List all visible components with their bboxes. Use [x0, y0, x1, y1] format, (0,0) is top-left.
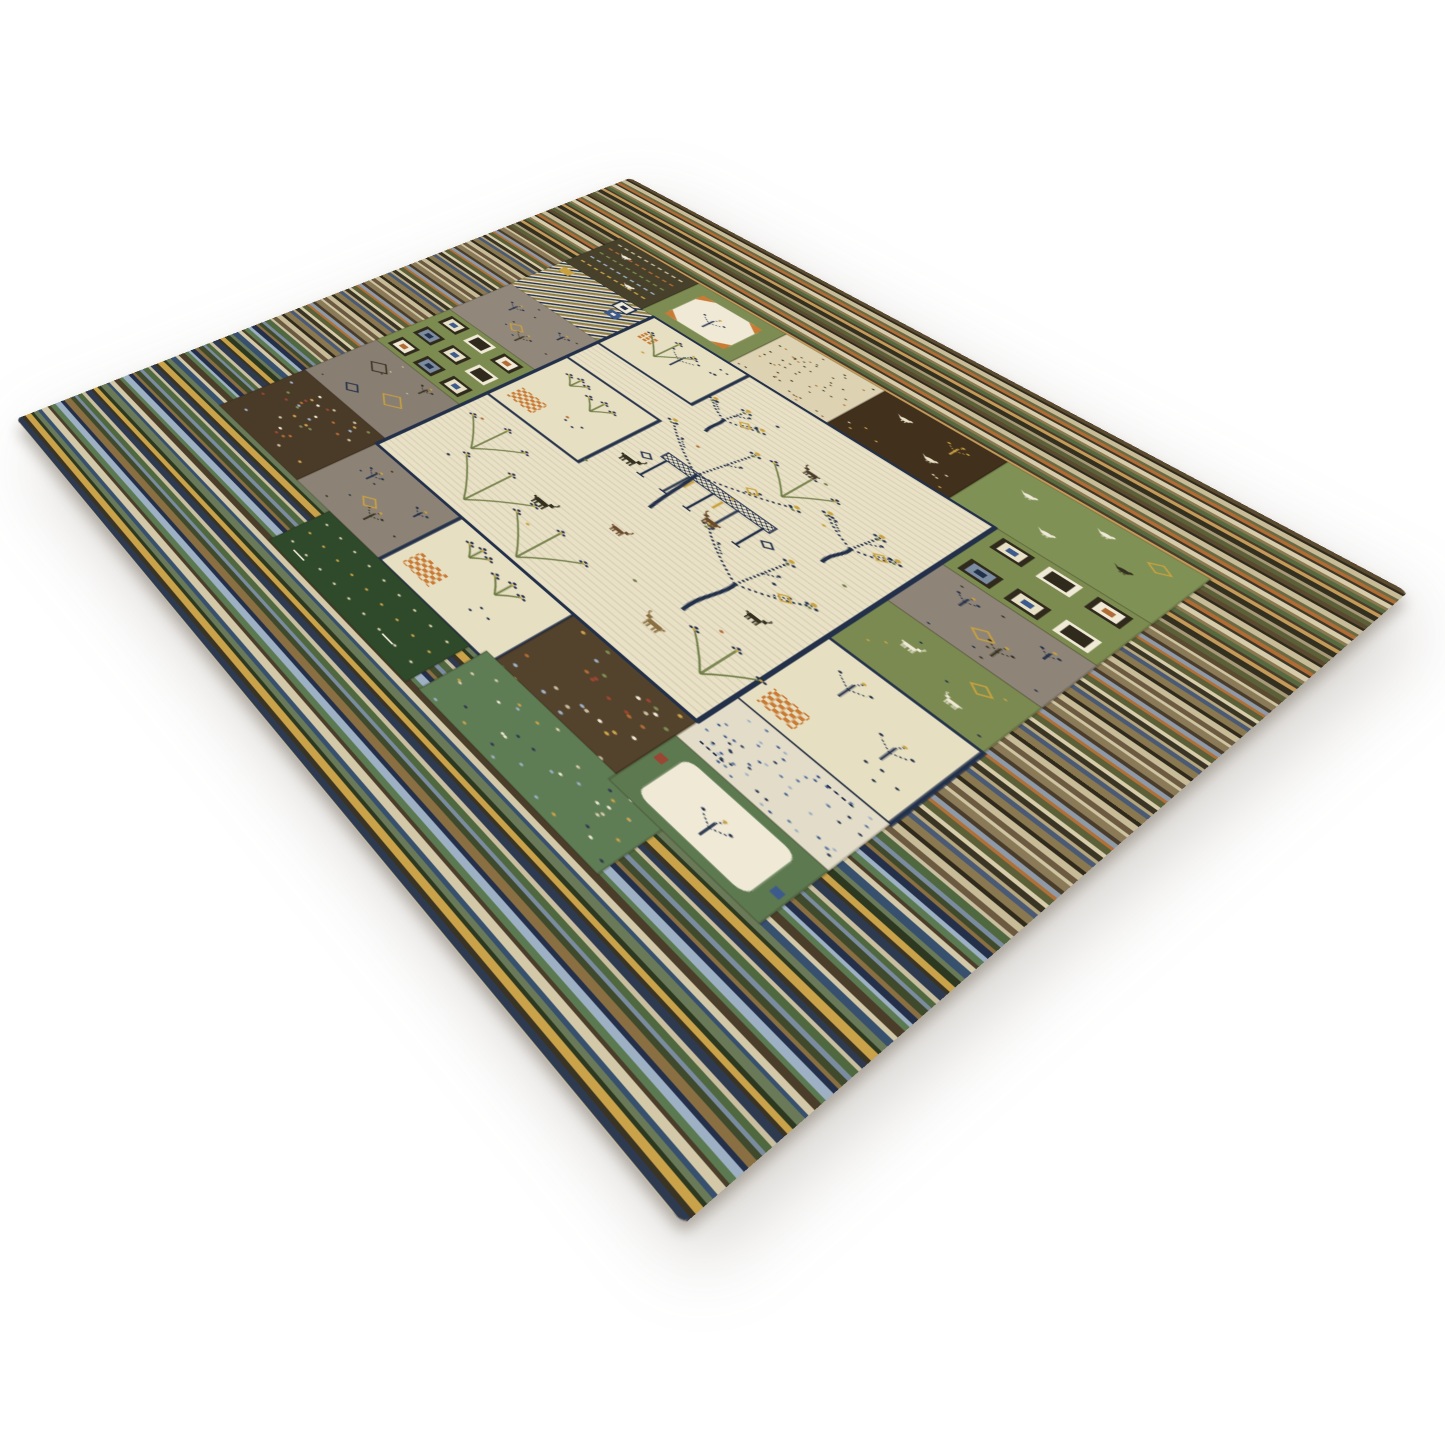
rug — [16, 178, 1408, 1225]
rug-shadow — [0, 0, 1445, 1445]
rug-artwork — [16, 178, 1408, 1225]
photo-background: { "scene": { "description": "Product pho… — [0, 0, 1445, 1445]
product-photo — [0, 0, 1445, 1445]
